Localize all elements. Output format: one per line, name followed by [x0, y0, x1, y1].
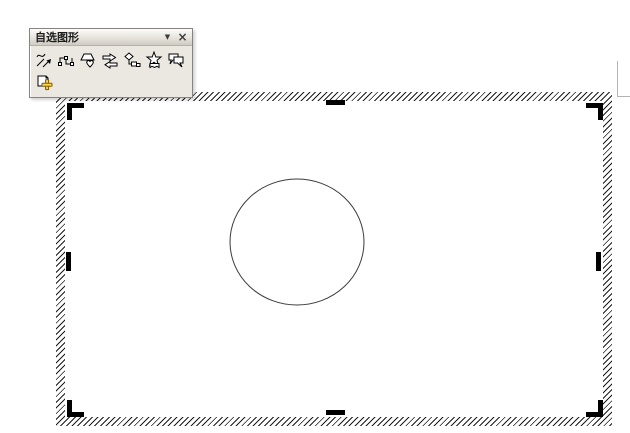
flowchart-icon	[123, 51, 141, 69]
resize-handle-left-center[interactable]	[66, 252, 71, 271]
lines-icon	[35, 51, 53, 69]
block-arrows-button[interactable]	[99, 48, 121, 71]
lines-button[interactable]	[33, 48, 55, 71]
autoshapes-toolbar-row-1	[33, 48, 189, 71]
resize-handle-right-center[interactable]	[596, 252, 601, 271]
drawing-canvas-frame[interactable]	[56, 92, 612, 426]
connectors-icon	[57, 51, 75, 69]
resize-handle-bottom-center[interactable]	[326, 410, 345, 415]
page-margin-mark-horizontal	[617, 96, 630, 97]
connectors-button[interactable]	[55, 48, 77, 71]
resize-handle-top-center[interactable]	[326, 100, 345, 105]
stars-banners-icon	[145, 51, 163, 69]
toolbar-options-arrow-icon[interactable]: ▼	[160, 31, 175, 44]
callouts-button[interactable]	[165, 48, 187, 71]
toolbar-close-icon[interactable]: ×	[175, 31, 190, 44]
autoshapes-toolbar-title: 自选图形	[35, 29, 160, 46]
resize-handle-bottom-left[interactable]	[67, 400, 84, 417]
callouts-icon	[167, 51, 185, 69]
more-autoshapes-icon	[35, 74, 53, 92]
resize-handle-bottom-right[interactable]	[586, 400, 603, 417]
block-arrows-icon	[101, 51, 119, 69]
page-margin-mark-vertical	[617, 61, 618, 96]
basic-shapes-icon	[79, 51, 97, 69]
resize-handle-top-right[interactable]	[586, 103, 603, 120]
stars-banners-button[interactable]	[143, 48, 165, 71]
flowchart-button[interactable]	[121, 48, 143, 71]
more-autoshapes-button[interactable]	[33, 71, 55, 94]
basic-shapes-button[interactable]	[77, 48, 99, 71]
resize-handle-top-left[interactable]	[67, 103, 84, 120]
autoshapes-toolbar-body	[30, 46, 192, 97]
autoshapes-toolbar-row-2	[33, 71, 189, 94]
autoshapes-toolbar-titlebar[interactable]: 自选图形 ▼ ×	[30, 29, 192, 46]
autoshapes-toolbar: 自选图形 ▼ ×	[29, 28, 193, 98]
drawing-canvas-area[interactable]	[65, 101, 603, 417]
